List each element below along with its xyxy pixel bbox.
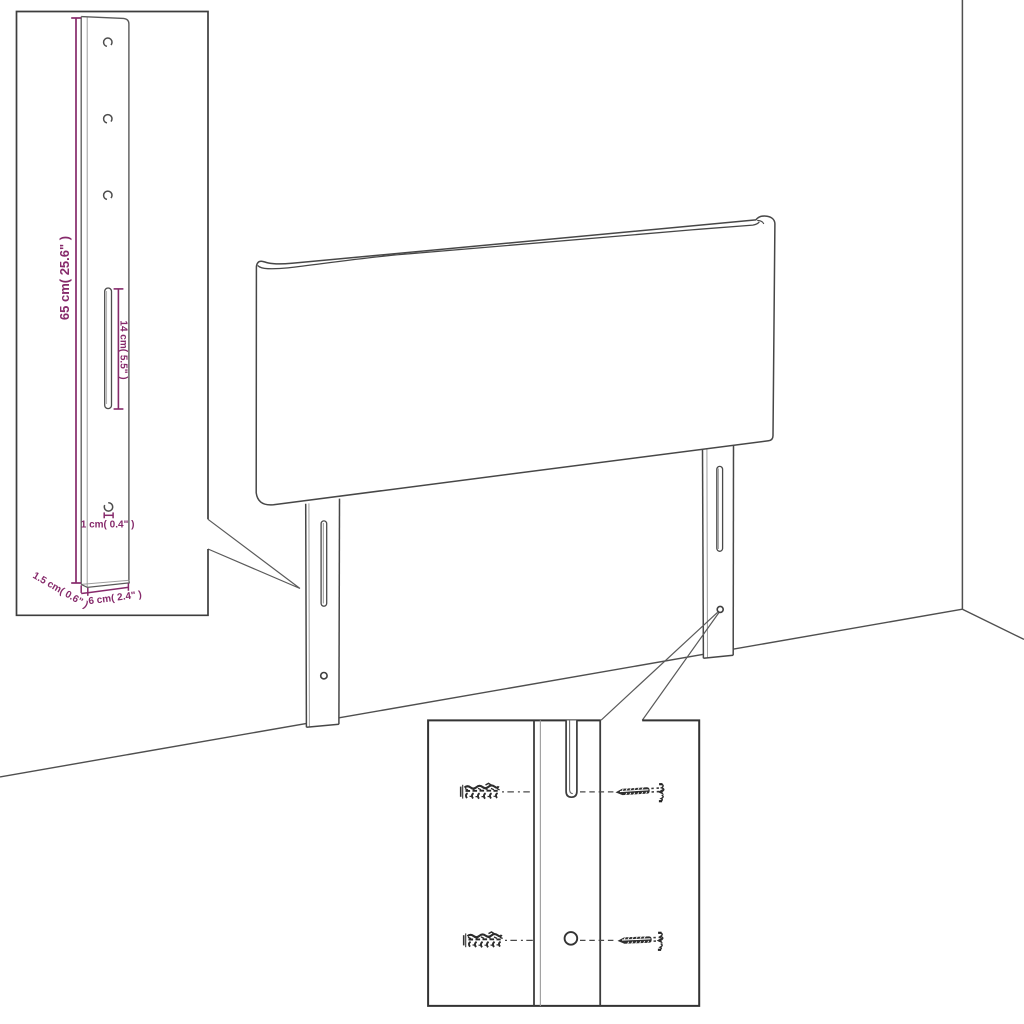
svg-text:65 cm( 25.6" ): 65 cm( 25.6" ) xyxy=(57,236,72,320)
svg-text:1 cm( 0.4" ): 1 cm( 0.4" ) xyxy=(81,520,135,531)
svg-text:14 cm( 5.5" ): 14 cm( 5.5" ) xyxy=(118,320,129,379)
